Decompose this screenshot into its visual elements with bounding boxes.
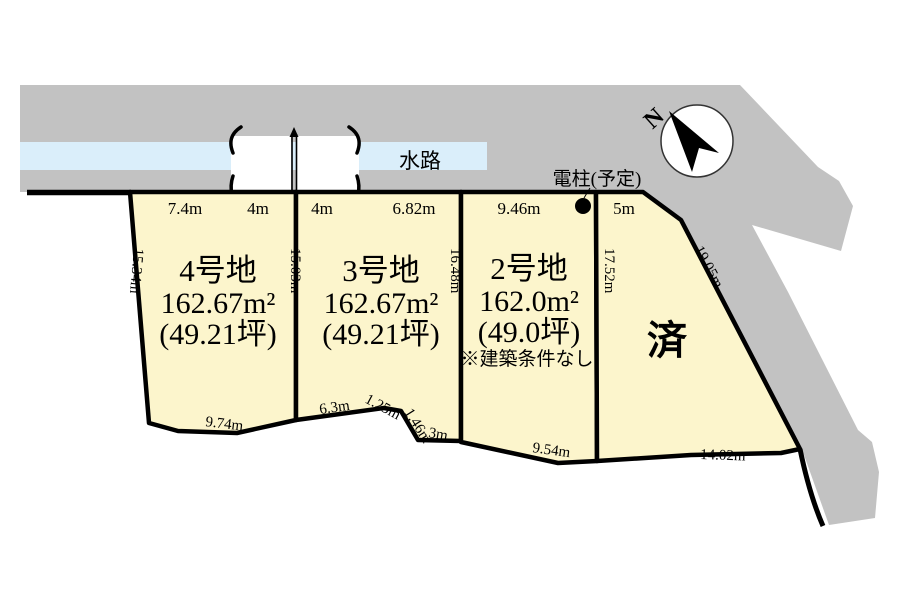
lot3-name: 3号地 [342, 253, 420, 288]
lot2-name: 2号地 [490, 251, 568, 286]
lot3-tsubo: (49.21坪) [322, 318, 439, 351]
lot2-note: ※建築条件なし [460, 348, 593, 370]
lot1-sold-stamp: 済 [647, 318, 688, 363]
lot-map-canvas: 7.4m 4m 4m 6.82m 9.46m 5m 15.34m 15.03m … [0, 0, 900, 600]
dim-bridge-right: 4m [311, 199, 333, 218]
utility-pole-label: 電柱(予定) [553, 168, 642, 190]
dim-top-lot3: 6.82m [393, 199, 436, 218]
dim-boundary-4-3: 15.03m [287, 248, 303, 294]
lot4-name: 4号地 [179, 253, 257, 288]
dim-bridge-left: 4m [247, 199, 269, 218]
dim-top-lot4: 7.4m [168, 199, 202, 218]
dim-bottom-lot1: 14.02m [700, 447, 746, 465]
dim-top-lot1: 5m [613, 199, 635, 218]
lot4-area: 162.67m² [161, 287, 276, 320]
bridge-gap-left [231, 136, 291, 193]
lot3-area: 162.67m² [324, 287, 439, 320]
bridge-gap-right [296, 136, 359, 193]
waterway-label: 水路 [399, 149, 441, 173]
dim-bottom-lot3-d: 3m [427, 425, 449, 444]
utility-pole-icon [575, 198, 591, 214]
dim-top-lot2: 9.46m [498, 199, 541, 218]
lot-map-svg: 7.4m 4m 4m 6.82m 9.46m 5m 15.34m 15.03m … [0, 0, 900, 600]
dim-boundary-2-1: 17.52m [601, 248, 617, 294]
lot4-tsubo: (49.21坪) [159, 318, 276, 351]
lot2-area: 162.0m² [479, 285, 579, 318]
lot2-tsubo: (49.0坪) [478, 316, 580, 349]
dim-boundary-3-2: 16.48m [447, 248, 463, 294]
